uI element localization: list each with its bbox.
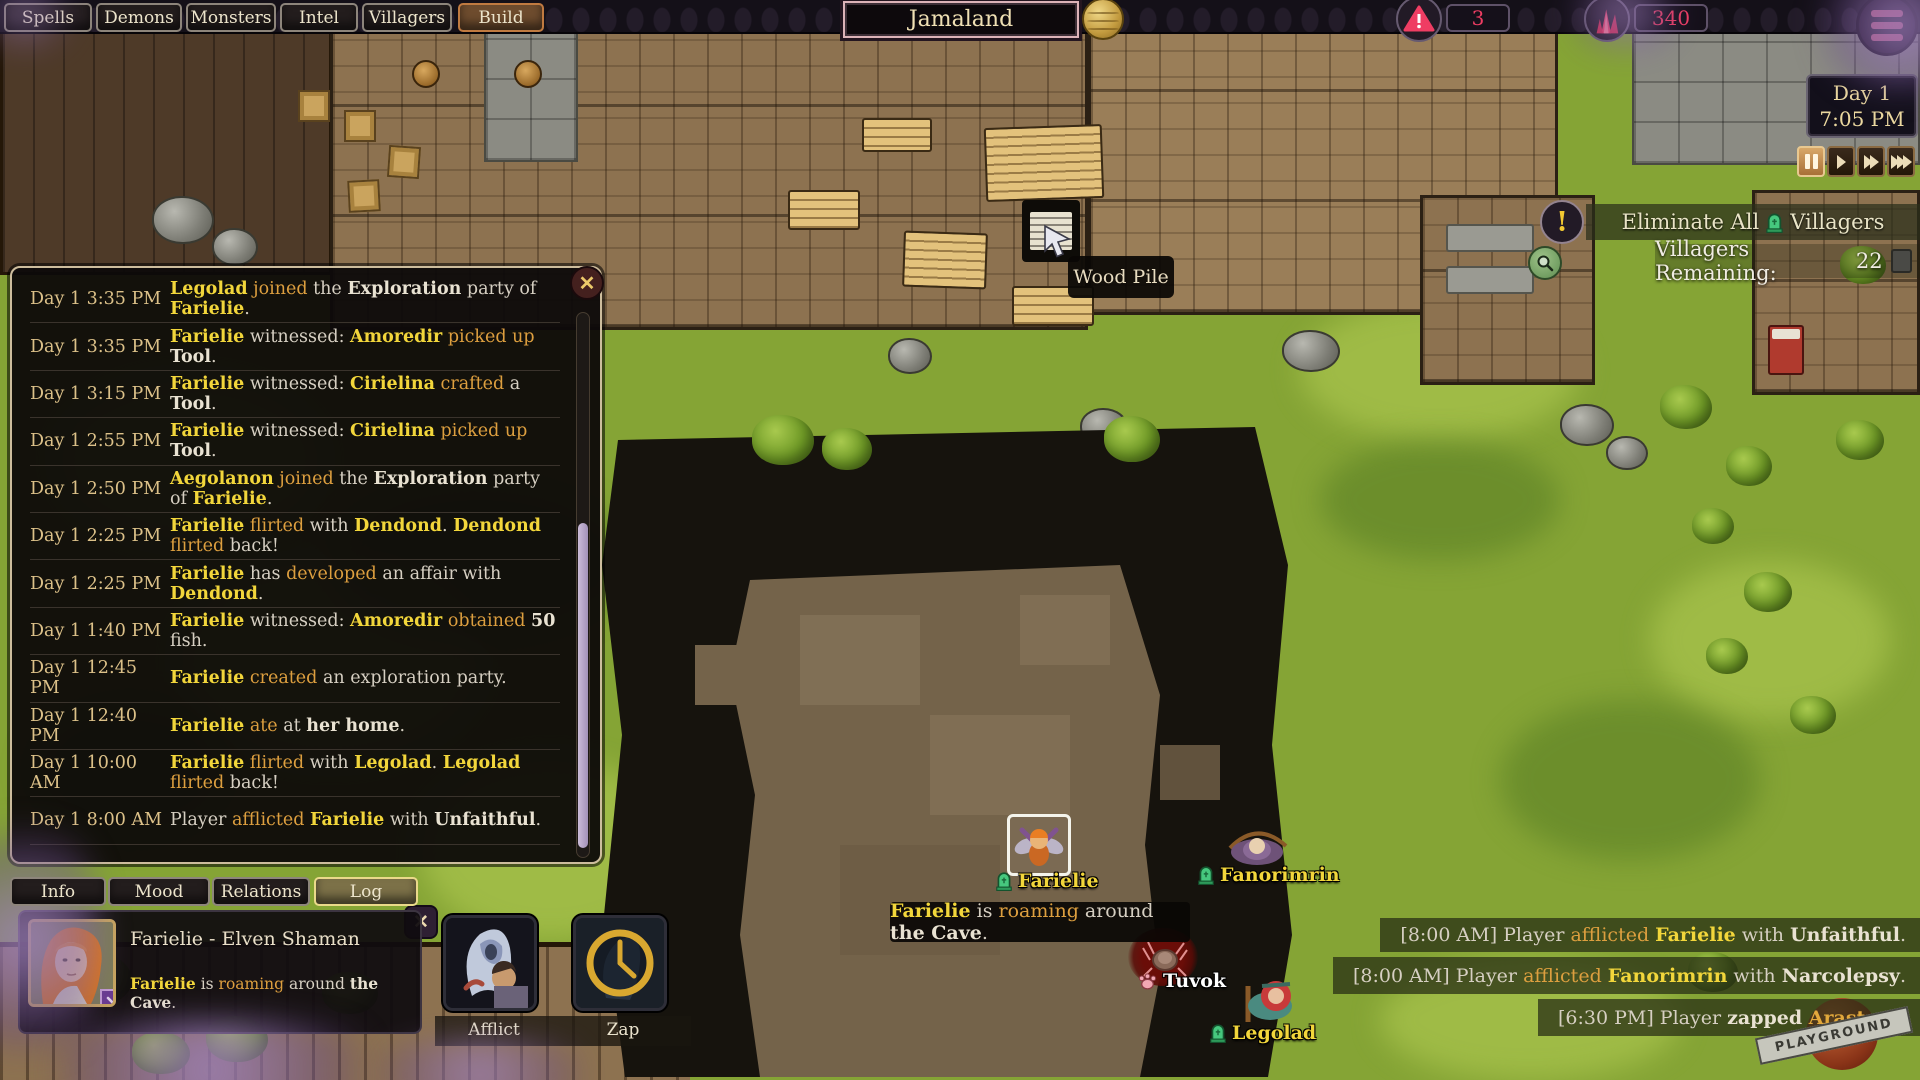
character-name-title: Farielie - Elven Shaman (130, 928, 360, 950)
zap-button[interactable] (573, 915, 667, 1011)
wood-pile[interactable] (902, 231, 988, 290)
log-entry: Day 1 2:25 PMFarielie has developed an a… (30, 560, 560, 607)
exclamation-icon: ! (1556, 207, 1568, 238)
tombstone-icon (1198, 865, 1214, 885)
fast-forward-button[interactable] (1857, 146, 1885, 177)
crate (347, 179, 381, 213)
crate (298, 90, 330, 122)
log-entry-time: Day 1 1:40 PM (30, 621, 170, 641)
tab-log[interactable]: Log (314, 877, 418, 906)
tree (1706, 638, 1748, 674)
objective-alert-icon[interactable]: ! (1540, 200, 1584, 244)
event-message: [8:00 AM] Player afflicted Farielie with… (1380, 918, 1920, 952)
tree (822, 428, 872, 470)
log-entry: Day 1 3:35 PMFarielie witnessed: Amoredi… (30, 323, 560, 370)
log-entry-time: Day 1 2:25 PM (30, 526, 170, 546)
tombstone-icon (1210, 1023, 1226, 1043)
log-panel: Day 1 3:35 PMLegolad joined the Explorat… (10, 266, 602, 864)
tab-build[interactable]: Build (458, 3, 544, 32)
rock (1606, 436, 1648, 470)
grass-patch (1500, 700, 1760, 860)
villager-sprite-legolad[interactable] (1236, 976, 1302, 1026)
tab-demons[interactable]: Demons (96, 3, 182, 32)
afflict-button[interactable] (443, 915, 537, 1011)
log-scrollbar-thumb[interactable] (578, 523, 588, 848)
log-entry: Day 1 3:35 PMLegolad joined the Explorat… (30, 276, 560, 323)
tree (752, 415, 814, 465)
tooltip-wood-pile: Wood Pile (1068, 256, 1174, 298)
log-entry: Day 1 12:40 PMFarielie ate at her home. (30, 703, 560, 750)
afflict-ghost-icon (446, 918, 534, 1008)
log-entry-time: Day 1 2:50 PM (30, 479, 170, 499)
barrel (412, 60, 440, 88)
crate (387, 145, 421, 179)
alert-count[interactable]: 3 (1446, 4, 1510, 32)
objective-zoom-icon[interactable] (1528, 246, 1562, 280)
paw-icon (1138, 973, 1157, 990)
tree (1790, 696, 1836, 734)
tab-info[interactable]: Info (10, 877, 106, 906)
wood-pile[interactable] (984, 124, 1105, 202)
log-entry: Day 1 1:40 PMFarielie witnessed: Amoredi… (30, 608, 560, 655)
crate (344, 110, 376, 142)
log-entry: Day 1 2:50 PMAegolanon joined the Explor… (30, 466, 560, 513)
log-entry-message: Farielie flirted with Dendond. Dendond f… (170, 516, 560, 556)
objective-checkbox[interactable] (1891, 249, 1912, 273)
log-entry-message: Aegolanon joined the Exploration party o… (170, 469, 560, 509)
log-entry-time: Day 1 2:25 PM (30, 574, 170, 594)
log-entry: Day 1 8:00 AMPlayer afflicted Farielie w… (30, 797, 560, 844)
log-entry: Day 1 2:25 PMFarielie flirted with Dendo… (30, 513, 560, 560)
mouse-cursor-icon (1042, 224, 1072, 258)
log-entry: Day 1 12:45 PMFarielie created an explor… (30, 655, 560, 702)
rock (888, 338, 932, 374)
log-entry-time: Day 1 10:00 AM (30, 753, 170, 793)
tombstone-icon (1766, 212, 1783, 233)
zap-clock-icon (576, 918, 664, 1008)
event-message: [8:00 AM] Player afflicted Fanorimrin wi… (1333, 957, 1920, 994)
tree (1744, 572, 1792, 612)
globe-icon[interactable] (1082, 0, 1124, 40)
tree (1660, 385, 1712, 429)
log-entry: Day 1 3:15 PMFarielie witnessed: Cirieli… (30, 371, 560, 418)
log-scrollbar[interactable] (576, 312, 590, 858)
villager-label-tuvok[interactable]: Tuvok (1138, 970, 1226, 992)
rock (152, 196, 214, 244)
world-name: Jamaland (843, 1, 1079, 38)
rock (1560, 404, 1614, 446)
profession-badge-icon (99, 988, 116, 1007)
log-entry-message: Player afflicted Farielie with Unfaithfu… (170, 810, 560, 830)
log-entry-time: Day 1 3:35 PM (30, 289, 170, 309)
tree (1726, 446, 1772, 486)
tree (1692, 508, 1734, 544)
log-entry-message: Farielie created an exploration party. (170, 668, 560, 688)
tab-relations[interactable]: Relations (212, 877, 310, 906)
rock (1282, 330, 1340, 372)
play-button[interactable] (1827, 146, 1855, 177)
bed (1446, 266, 1534, 294)
villagers-remaining: Villagers Remaining: 22 (1655, 244, 1920, 278)
tooltip-farielie-status: Farielie is roaming around the Cave. (890, 902, 1190, 942)
stone-floor (484, 30, 578, 162)
pause-button[interactable] (1797, 146, 1825, 177)
tree (1836, 420, 1884, 460)
objective-title: Eliminate All Villagers (1586, 204, 1920, 240)
tombstone-icon (996, 871, 1012, 891)
log-entry-time: Day 1 3:15 PM (30, 384, 170, 404)
log-entry-time: Day 1 3:35 PM (30, 337, 170, 357)
log-entry-message: Farielie flirted with Legolad. Legolad f… (170, 753, 560, 793)
log-entry-time: Day 1 12:40 PM (30, 706, 170, 746)
grass-patch (1320, 440, 1560, 560)
character-status: Farielie is roaming around the Cave. (130, 974, 420, 1012)
bed (1768, 325, 1804, 375)
villager-label-legolad[interactable]: Legolad (1210, 1022, 1316, 1044)
wood-pile[interactable] (862, 118, 932, 152)
log-entry-message: Farielie witnessed: Amoredir obtained 50… (170, 611, 560, 651)
villager-label-farielie[interactable]: Farielie (996, 870, 1099, 892)
game-screen: Farielie Fanorimrin Tuvok Legolad Wood P… (0, 0, 1920, 1080)
log-entry: Day 1 2:55 PMFarielie witnessed: Cirieli… (30, 418, 560, 465)
tab-intel[interactable]: Intel (280, 3, 358, 32)
log-entry-message: Farielie witnessed: Cirielina picked up … (170, 421, 560, 461)
log-close-button[interactable]: ✕ (570, 266, 604, 300)
villager-label-fanorimrin[interactable]: Fanorimrin (1198, 864, 1340, 886)
villagers-remaining-value: 22 (1856, 249, 1883, 273)
magnifier-icon (1536, 254, 1554, 272)
tab-monsters[interactable]: Monsters (186, 3, 276, 32)
tab-villagers[interactable]: Villagers (362, 3, 452, 32)
warning-triangle-icon (1403, 5, 1435, 33)
log-entry-time: Day 1 2:55 PM (30, 431, 170, 451)
wood-pile[interactable] (788, 190, 860, 230)
log-entry: Day 1 10:00 AMFarielie flirted with Lego… (30, 750, 560, 797)
tree (1104, 416, 1160, 462)
afflict-label: Afflict (439, 1020, 549, 1040)
rock (212, 228, 258, 266)
log-entry-message: Legolad joined the Exploration party of … (170, 279, 560, 319)
log-entry-message: Farielie ate at her home. (170, 716, 560, 736)
log-entry-time: Day 1 12:45 PM (30, 658, 170, 698)
zap-label: Zap (565, 1020, 681, 1040)
log-entry-message: Farielie witnessed: Amoredir picked up T… (170, 327, 560, 367)
bed (1446, 224, 1534, 252)
clock-time: 7:05 PM (1819, 106, 1904, 132)
selection-box (1007, 814, 1071, 876)
log-entry-message: Farielie witnessed: Cirielina crafted a … (170, 374, 560, 414)
tab-mood[interactable]: Mood (108, 877, 210, 906)
log-entry-message: Farielie has developed an affair with De… (170, 564, 560, 604)
log-entries: Day 1 3:35 PMLegolad joined the Explorat… (30, 276, 560, 856)
barrel (514, 60, 542, 88)
fastest-forward-button[interactable] (1887, 146, 1915, 177)
